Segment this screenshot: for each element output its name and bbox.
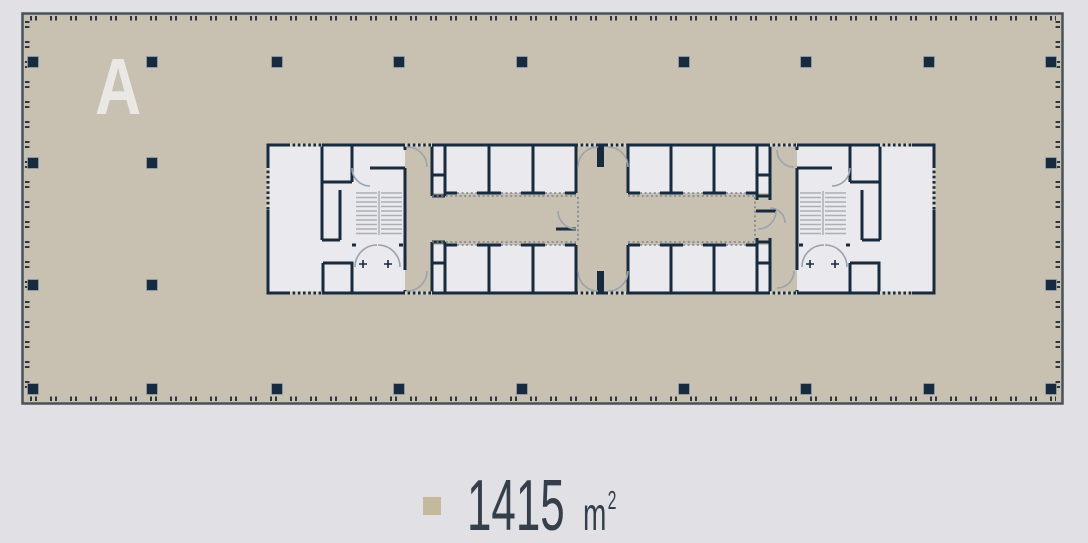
column [924, 384, 935, 395]
area-unit-exponent: 2 [608, 486, 617, 515]
column [147, 384, 158, 395]
area-unit: m2 [583, 486, 616, 541]
column [28, 384, 39, 395]
column [517, 384, 528, 395]
column [28, 158, 39, 169]
corridor-stub-bottom [597, 271, 604, 293]
building-label: A [95, 42, 141, 131]
area-bullet [423, 497, 441, 515]
column [1046, 384, 1057, 395]
column [394, 384, 405, 395]
column [801, 57, 812, 68]
column [1046, 280, 1057, 291]
column [147, 57, 158, 68]
column [28, 57, 39, 68]
column [394, 57, 405, 68]
area-caption: 1415 m2 [423, 465, 616, 543]
column [679, 57, 690, 68]
column [1046, 158, 1057, 169]
column [147, 158, 158, 169]
area-value: 1415 [467, 465, 565, 543]
column [801, 384, 812, 395]
column [679, 384, 690, 395]
column [272, 384, 283, 395]
area-unit-base: m [583, 490, 606, 541]
column [1046, 57, 1057, 68]
column [147, 280, 158, 291]
column [272, 57, 283, 68]
column [28, 280, 39, 291]
corridor-stub-top [597, 145, 604, 167]
floor-plan-canvas: A 1415 m2 [0, 0, 1088, 543]
column [924, 57, 935, 68]
floor-plan-page: A 1415 m2 [0, 0, 1088, 543]
column [517, 57, 528, 68]
